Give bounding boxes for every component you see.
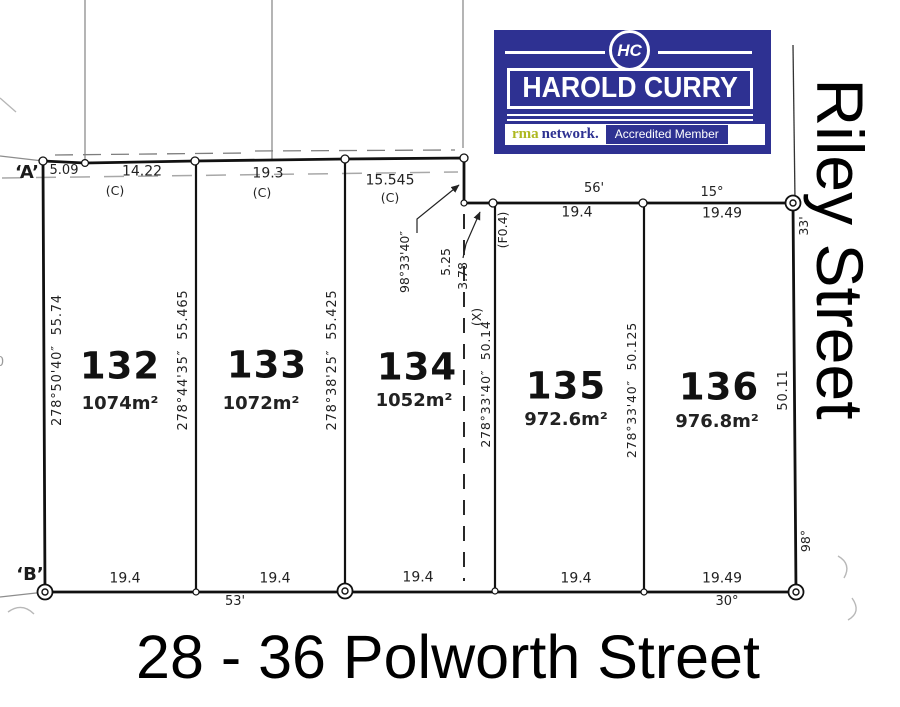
jog-bearing-label: 98°33'40″ 5.25 (370, 231, 466, 293)
lot-area-133: 1072m² (223, 394, 300, 414)
jog-distance: 5.25 (439, 231, 453, 293)
riley-street-title: Riley Street (802, 78, 878, 419)
jog-bearing: 98°33'40″ (397, 231, 411, 293)
bearing-old-x: 278°33'40″ 50.14 (479, 320, 493, 447)
subdivision-plan-page: { "plan": { "corners": { "a": "‘A’", "b"… (0, 0, 900, 707)
riley-boundary-extension (793, 45, 795, 200)
logo-rule-left (505, 51, 605, 54)
lot-number-135: 135 (526, 367, 606, 408)
corner-label-b: ‘B’ (16, 565, 43, 585)
logo-name-box: HAROLD CURRY (507, 68, 753, 109)
top-c-2: (C) (253, 186, 271, 200)
top-measure-19-49: 19.49 (702, 206, 742, 221)
bottom-old-30deg: 30° (715, 595, 738, 609)
harold-curry-logo: HC HAROLD CURRY rma network. Accredited … (494, 30, 771, 154)
network-wordmark: network. (542, 126, 599, 143)
top-old-15deg: 15° (700, 186, 723, 200)
old-x-tag: (X) (470, 308, 484, 326)
polworth-street-title: 28 - 36 Polworth Street (136, 622, 760, 692)
bottom-old-53ft: 53' (225, 595, 245, 609)
lot-area-135: 972.6m² (524, 410, 608, 430)
logo-name-text: HAROLD CURRY (522, 72, 737, 105)
right-old-98deg: 98° (799, 530, 813, 552)
fence-tag-f0-4: (F0.4) (496, 212, 510, 249)
lot-area-136: 976.8m² (675, 412, 759, 432)
bottom-measure-133: 19.4 (259, 571, 290, 586)
bottom-measure-135: 19.4 (560, 571, 591, 586)
bottom-measure-134: 19.4 (402, 570, 433, 585)
hc-monogram-text: HC (617, 41, 642, 61)
bearing-lot135-136: 278°33'40″ 50.125 (625, 322, 639, 458)
top-measure-14-22: 14.22 (122, 164, 162, 179)
lot-area-132: 1074m² (82, 394, 159, 414)
bearing-lot132-133: 278°44'35″ 55.465 (177, 290, 191, 431)
hc-monogram-icon: HC (609, 30, 650, 71)
bottom-measure-136: 19.49 (702, 571, 742, 586)
top-measure-15-545: 15.545 (366, 173, 415, 188)
logo-network-strip: rma network. Accredited Member (505, 124, 765, 145)
edge-fragment: 0 (0, 356, 4, 370)
riley-frontage-50-11: 50.11 (777, 369, 791, 410)
top-old-56ft: 56' (584, 182, 604, 196)
remnant-lines (0, 0, 463, 597)
logo-underline-1 (507, 114, 753, 116)
stray-scribbles (8, 556, 856, 620)
bottom-measure-132: 19.4 (109, 571, 140, 586)
top-c-1: (C) (106, 184, 124, 198)
corner-label-a: ‘A’ (15, 163, 39, 183)
lot-number-136: 136 (679, 368, 759, 409)
top-measure-5-09: 5.09 (50, 164, 79, 178)
logo-rule-right (658, 51, 752, 54)
accredited-member-badge: Accredited Member (606, 125, 728, 144)
lot-area-134: 1052m² (376, 391, 453, 411)
bearing-lot133-134: 278°38'25″ 55.425 (326, 290, 340, 431)
rma-wordmark: rma (512, 126, 539, 143)
top-c-3: (C) (381, 191, 399, 205)
top-measure-19-4: 19.4 (561, 205, 592, 220)
lot-number-134: 134 (377, 348, 457, 389)
lot-number-133: 133 (227, 346, 307, 387)
lot-number-132: 132 (80, 347, 160, 388)
logo-underline-2 (507, 119, 753, 121)
bearing-lot132-west: 278°50'40″ 55.74 (51, 294, 65, 426)
top-measure-19-3: 19.3 (252, 166, 283, 181)
